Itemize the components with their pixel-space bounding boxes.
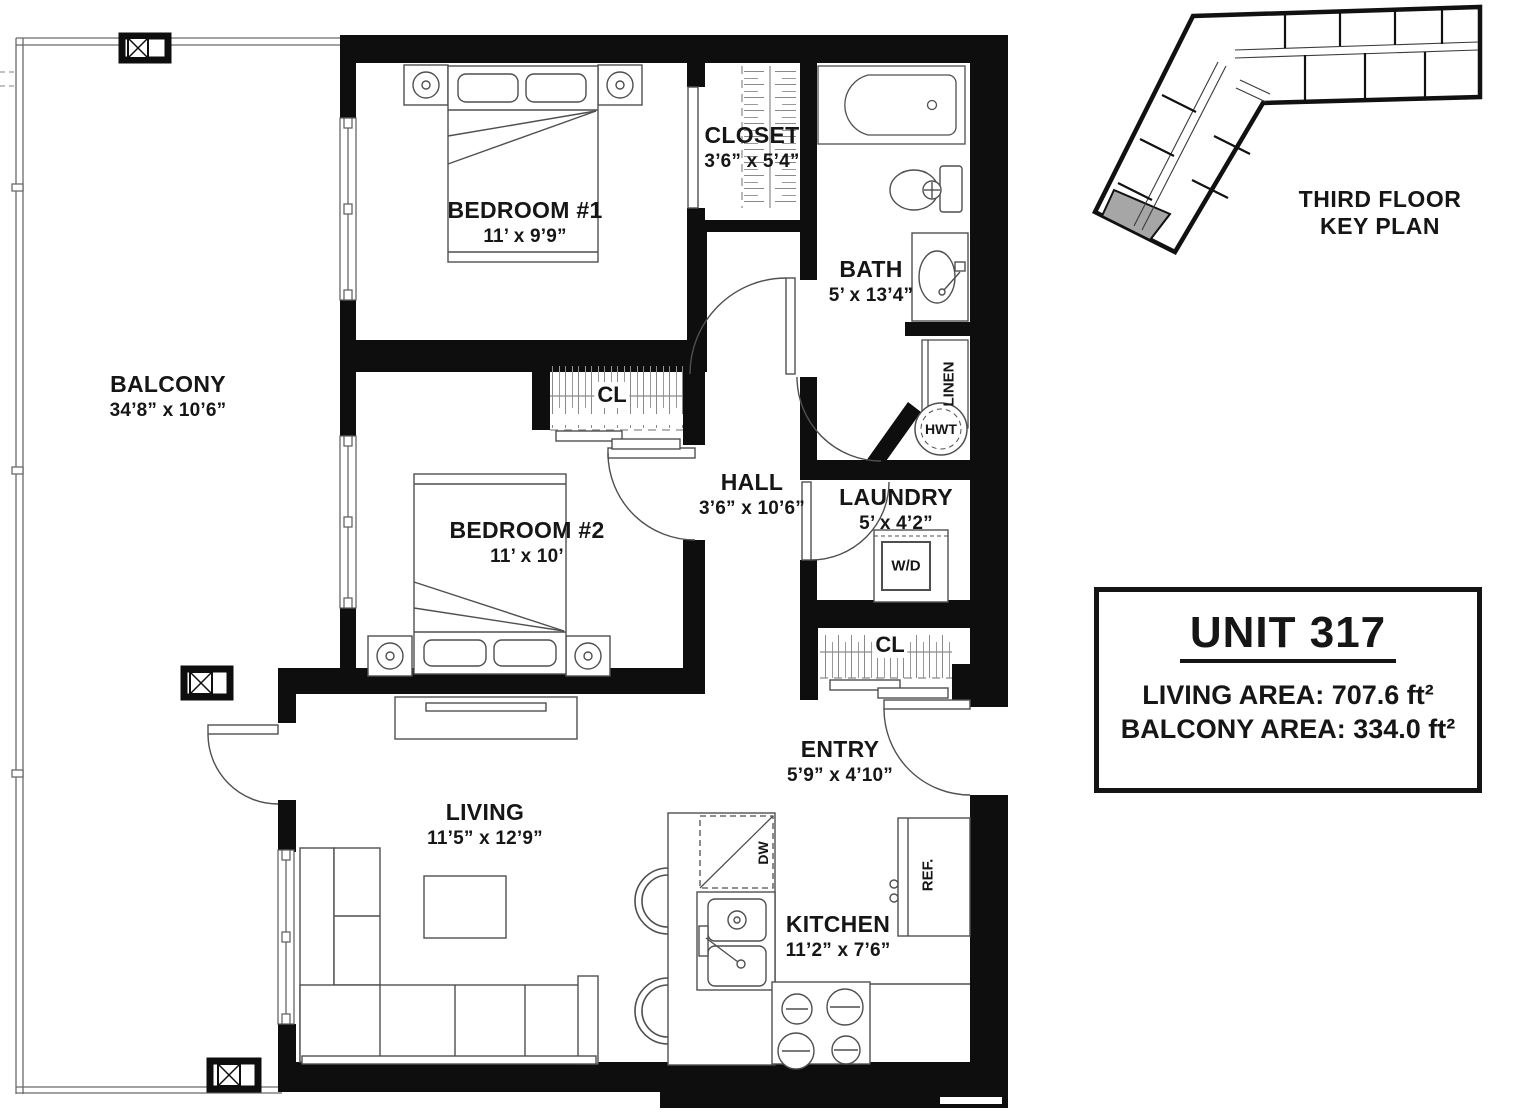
- kitchen-sink: [697, 892, 775, 990]
- toilet: [890, 166, 962, 212]
- window: [340, 118, 356, 300]
- property-line-dashes: [0, 72, 15, 86]
- label-dishwasher: DW: [755, 841, 771, 864]
- door-balcony: [208, 725, 278, 804]
- bathtub: [818, 66, 965, 144]
- label-washer-dryer: W/D: [891, 558, 920, 575]
- room-label-entry: ENTRY 5’9” x 4’10”: [787, 736, 893, 787]
- room-label-bedroom1: BEDROOM #1 11’ x 9’9”: [447, 197, 602, 248]
- bed-bedroom2: [368, 474, 610, 676]
- room-label-hall: HALL 3’6” x 10’6”: [699, 469, 805, 520]
- balcony-column-icon: [184, 669, 230, 697]
- door-bedroom2: [608, 448, 695, 540]
- coffee-table: [424, 876, 506, 938]
- unit-info-box: UNIT 317 LIVING AREA: 707.6 ft² BALCONY …: [1094, 587, 1482, 793]
- label-closet-bedroom2: CL: [594, 382, 629, 408]
- room-label-living: LIVING 11’5” x 12’9”: [427, 799, 543, 850]
- window: [278, 850, 294, 1024]
- room-label-closet: CLOSET 3’6” x 5’4”: [704, 122, 799, 173]
- island-stool: [635, 978, 668, 1044]
- key-plan-title: THIRD FLOOR KEY PLAN: [1299, 186, 1462, 240]
- room-label-laundry: LAUNDRY 5’ x 4’2”: [839, 484, 953, 535]
- balcony-column-icon: [210, 1061, 258, 1089]
- key-plan-title-line1: THIRD FLOOR: [1299, 186, 1462, 213]
- tv-console: [395, 697, 577, 739]
- key-plan-title-line2: KEY PLAN: [1299, 213, 1462, 240]
- label-closet-entry: CL: [872, 632, 907, 658]
- label-linen: LINEN: [941, 362, 958, 407]
- balcony-area-value: BALCONY AREA: 334.0 ft²: [1099, 712, 1477, 746]
- room-label-bath: BATH 5’ x 13’4”: [829, 256, 913, 307]
- room-label-kitchen: KITCHEN 11’2” x 7’6”: [786, 911, 891, 962]
- stove: [772, 982, 970, 1069]
- island-stool: [635, 868, 668, 934]
- label-hwt: HWT: [925, 421, 957, 437]
- floorplan-page: BALCONY 34’8” x 10’6” BEDROOM #1 11’ x 9…: [0, 0, 1517, 1116]
- bathroom-sink: [912, 233, 968, 321]
- room-label-balcony: BALCONY 34’8” x 10’6”: [110, 371, 227, 422]
- unit-title: UNIT 317: [1099, 608, 1477, 658]
- door-entry: [884, 700, 970, 795]
- window: [340, 436, 356, 608]
- door-closet-bedroom1: [688, 87, 698, 208]
- balcony-column-icon: [122, 36, 168, 60]
- room-label-bedroom2: BEDROOM #2 11’ x 10’: [449, 517, 604, 568]
- living-area-value: LIVING AREA: 707.6 ft²: [1099, 678, 1477, 712]
- label-refrigerator: REF.: [920, 859, 937, 892]
